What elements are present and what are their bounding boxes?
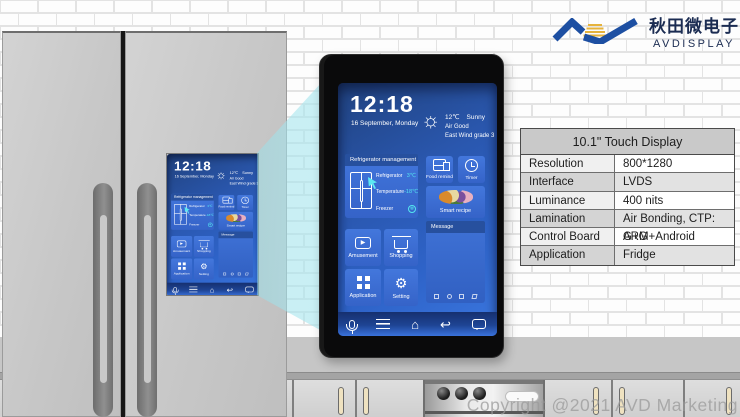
tile-label: Amusement (348, 253, 377, 259)
fridge-row-label: Freezer (376, 206, 393, 212)
home-icon[interactable]: ⌂ (210, 286, 215, 293)
tile-label: Timer (465, 176, 477, 181)
fridge-row-value: 3℃ (407, 173, 416, 179)
tile-label: Shopping (389, 253, 412, 259)
mic-icon[interactable] (173, 287, 177, 292)
spec-value: 400 nits (615, 192, 734, 209)
spec-table-title: 10.1" Touch Display (521, 129, 734, 155)
refrigerator-management-title: Refrigerator management (345, 154, 418, 166)
amusement-tile[interactable]: ▶Amusement (171, 236, 192, 257)
trash-icon[interactable] (434, 294, 439, 299)
food-remind-icon (223, 197, 231, 204)
fridge-row-value: -18℃ (404, 189, 418, 195)
fridge-row-value: 3℃ (207, 205, 212, 208)
play-icon: ▶ (177, 240, 186, 247)
application-tile[interactable]: Application (171, 259, 192, 280)
back-icon[interactable]: ↩ (227, 286, 233, 293)
brand-name-cn: 秋田微电子 (649, 12, 739, 37)
timer-icon (241, 196, 249, 203)
spec-label: Luminance (521, 192, 615, 209)
clock-time: 12:18 (174, 158, 211, 173)
menu-icon[interactable] (376, 319, 390, 329)
spec-label: Lamination (521, 210, 615, 227)
cabinet-handle (363, 387, 369, 415)
tile-label: Timer (242, 206, 249, 209)
fridge-row-label: Temperature (376, 189, 404, 195)
food-photo (226, 214, 246, 222)
tile-label: Shopping (197, 250, 211, 253)
timer-tile[interactable]: Timer (458, 156, 485, 183)
weather-wind: East Wind grade 3 (230, 182, 259, 187)
brand-name-en: AVDISPLAY (649, 38, 739, 50)
app-grid-icon (178, 262, 186, 269)
gear-icon: ⚙ (395, 276, 408, 290)
spec-label: Resolution (521, 155, 615, 172)
tile-label: Setting (199, 272, 209, 275)
weather-condition: Sunny (467, 114, 485, 121)
fridge-display-screen: 12:18 16 September, Monday ☼ 12℃Sunny Ai… (167, 154, 259, 296)
fridge-row-label: Refrigerator (189, 205, 204, 208)
chat-icon[interactable] (472, 319, 486, 329)
spec-label: Control Board (521, 228, 615, 245)
weather-wind: East Wind grade 3 (445, 132, 494, 141)
weather-info: 12℃Sunny Air Good East Wind grade 3 (445, 113, 494, 142)
brand-logo: 秋田微电子 AVDISPLAY (552, 12, 739, 50)
embedded-fridge-display: 12:18 16 September, Monday ☼ 12℃Sunny Ai… (166, 153, 259, 296)
compose-icon[interactable] (471, 294, 477, 299)
timer-tile[interactable]: Timer (237, 195, 253, 210)
tile-label: Application (350, 293, 377, 299)
cart-icon (200, 242, 208, 247)
spec-value: Air Bonding, CTP: G+G (615, 210, 734, 227)
message-title: Message (218, 232, 253, 239)
fridge-door-handle (93, 183, 113, 417)
tile-label: Setting (392, 294, 409, 300)
marketing-scene: 12:18 16 September, Monday ☼ 12℃Sunny Ai… (0, 0, 740, 417)
tile-label: Smart recipe (227, 224, 245, 227)
sun-icon: ☼ (216, 169, 227, 181)
fridge-row-label: Refrigerator (376, 173, 402, 179)
tile-label: Food remind (426, 175, 453, 180)
setting-tile[interactable]: ⚙Setting (194, 259, 214, 280)
food-photo (439, 190, 473, 204)
play-icon: ▶ (355, 237, 371, 249)
tile-label: Amusement (173, 249, 190, 252)
camera-icon[interactable] (459, 294, 464, 299)
clock-icon[interactable] (231, 273, 234, 276)
smart-recipe-tile[interactable]: Smart recipe (218, 212, 253, 230)
avdisplay-swoosh-icon (552, 18, 640, 44)
fridge-door-handle (137, 183, 157, 417)
fridge-door-gap (121, 31, 125, 417)
timer-icon (465, 159, 478, 172)
amusement-tile[interactable]: ▶Amusement (345, 229, 381, 266)
shopping-tile[interactable]: Shopping (384, 229, 418, 266)
chat-icon[interactable] (245, 287, 253, 293)
smart-recipe-tile[interactable]: Smart recipe (426, 186, 485, 218)
setting-tile[interactable]: ⚙Setting (384, 269, 418, 306)
food-remind-icon (433, 159, 446, 171)
android-nav-bar: ⌂ ↩ (338, 312, 497, 336)
menu-icon[interactable] (189, 287, 197, 293)
cart-icon (394, 240, 408, 249)
tile-label: Application (174, 272, 190, 275)
android-nav-bar: ⌂ ↩ (167, 283, 259, 296)
refrigerator-management-card[interactable]: Refrigerator management Refrigerator3℃ T… (345, 154, 418, 218)
food-remind-tile[interactable]: Food remind (218, 195, 234, 210)
tile-label: Smart recipe (440, 208, 471, 214)
gear-icon: ⚙ (200, 262, 207, 270)
spec-value: 800*1280 (615, 155, 734, 172)
spec-value: LVDS (615, 173, 734, 190)
fridge-row-label: Freezer (189, 223, 199, 226)
clock-time: 12:18 (350, 91, 414, 118)
cabinet-divider (355, 380, 357, 417)
snowflake-icon: ❄ (208, 223, 213, 227)
copyright-watermark: Copyright @2021 AVD Marketing (467, 395, 738, 416)
app-grid-icon (357, 276, 370, 289)
home-icon[interactable]: ⌂ (411, 318, 419, 331)
spec-table: 10.1" Touch Display Resolution800*1280 I… (520, 128, 735, 266)
oven-knob (437, 387, 450, 400)
back-icon[interactable]: ↩ (440, 318, 451, 331)
message-panel[interactable]: Message (218, 232, 253, 278)
clock-date: 16 September, Monday (351, 120, 418, 127)
spec-label: Application (521, 246, 615, 264)
weather-temp: 12℃ (445, 114, 460, 121)
application-tile[interactable]: Application (345, 269, 381, 306)
touch-display-screen: 12:18 16 September, Monday ☼ 12℃Sunny Ai… (338, 83, 497, 336)
snowflake-icon: ❄ (408, 205, 416, 213)
message-panel[interactable]: Message (426, 221, 485, 303)
clock-date: 16 September, Monday (175, 175, 214, 179)
compose-icon[interactable] (245, 273, 249, 276)
refrigerator-management-card[interactable]: Refrigerator management Refrigerator3℃ T… (171, 194, 214, 230)
weather-temp: 12℃ (230, 171, 239, 175)
cabinet-divider (292, 380, 294, 417)
sun-icon: ☼ (421, 110, 440, 131)
weather-condition: Sunny (242, 171, 253, 175)
weather-air: Air Good (445, 123, 494, 132)
clock-icon[interactable] (447, 294, 452, 299)
shopping-tile[interactable]: Shopping (194, 236, 214, 257)
spec-value: ARM+Android (615, 228, 734, 245)
fridge-row-label: Temperature (189, 214, 205, 217)
food-remind-tile[interactable]: Food remind (426, 156, 453, 183)
camera-icon[interactable] (238, 273, 241, 276)
message-title: Message (426, 221, 485, 233)
spec-value: Fridge (615, 246, 734, 264)
touch-display-device: 12:18 16 September, Monday ☼ 12℃Sunny Ai… (319, 54, 504, 358)
spec-label: Interface (521, 173, 615, 190)
fridge-row-value: -18℃ (206, 214, 214, 217)
refrigerator-management-title: Refrigerator management (171, 194, 214, 201)
tile-label: Food remind (218, 206, 234, 209)
weather-info: 12℃Sunny Air Good East Wind grade 3 (230, 171, 259, 187)
cabinet-handle (338, 387, 344, 415)
mic-icon[interactable] (349, 320, 355, 329)
trash-icon[interactable] (223, 273, 226, 276)
